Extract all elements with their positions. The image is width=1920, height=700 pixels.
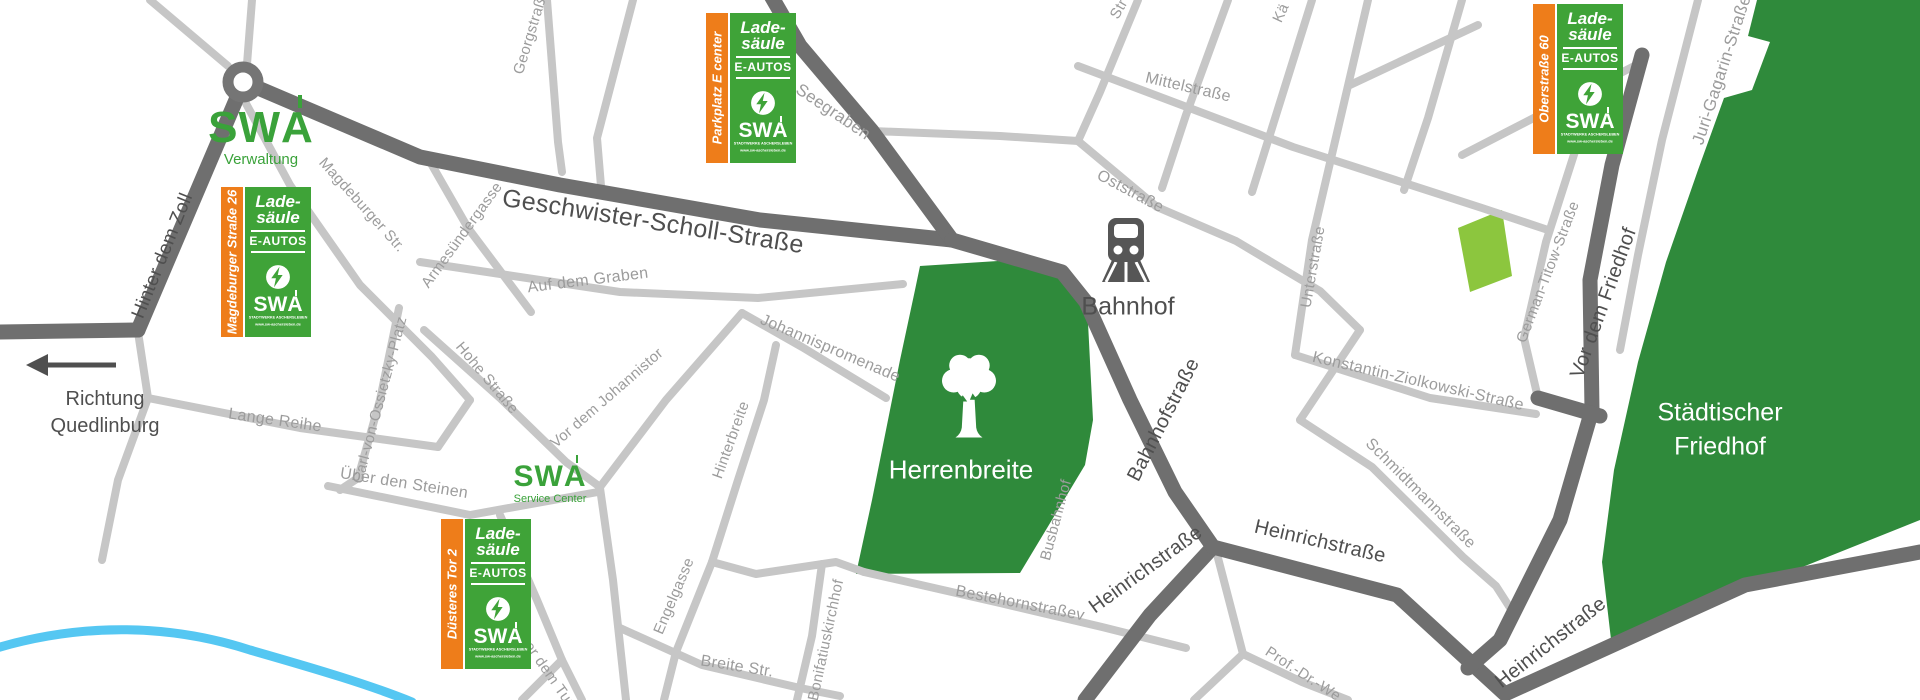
marker-vehicle-label: E-AUTOS	[469, 567, 526, 579]
swa-logo-text: SWA	[502, 462, 598, 492]
marker-brand-sub: STADTWERKE ASCHERSLEBEN	[249, 315, 308, 319]
swa-logo-text: SWA	[196, 106, 326, 150]
marker-brand-sub: STADTWERKE ASCHERSLEBEN	[469, 647, 528, 651]
marker-body: Lade-säule E-AUTOS SWA STADTWERKE ASCHER…	[245, 187, 311, 337]
charging-station-marker-magdeburger-strasse-26: Magdeburger Straße 26 Lade-säule E-AUTOS…	[221, 187, 311, 337]
roundabout	[228, 67, 258, 97]
marker-brand-url: www.sw-aschersleben.de	[1567, 139, 1613, 143]
divider	[471, 583, 525, 585]
marker-street-label: Parkplatz E center	[710, 32, 725, 145]
cemetery-area	[1602, 0, 1920, 648]
river	[0, 630, 412, 700]
marker-street-band: Düsteres Tor 2	[441, 519, 463, 669]
divider	[1563, 47, 1617, 49]
marker-street-label: Magdeburger Straße 26	[225, 190, 240, 335]
charging-bolt-icon	[265, 264, 291, 290]
city-map: Richtung Quedlinburg Hinter dem ZollMagd…	[0, 0, 1920, 700]
swa-verwaltung-logo: SWA Verwaltung	[196, 106, 326, 168]
charging-station-marker-parkplatz-e-center: Parkplatz E center Lade-säule E-AUTOS SW…	[706, 13, 796, 163]
divider	[736, 56, 790, 58]
marker-street-band: Magdeburger Straße 26	[221, 187, 243, 337]
direction-line1: Richtung	[20, 386, 190, 413]
marker-street-label: Düsteres Tor 2	[445, 549, 460, 640]
cemetery-label-line2: Friedhof	[1674, 433, 1766, 462]
left-arrow-icon	[24, 350, 124, 380]
charging-station-marker-oberstrasse-60: Oberstraße 60 Lade-säule E-AUTOS SWA STA…	[1533, 4, 1623, 154]
direction-line2: Quedlinburg	[20, 413, 190, 440]
marker-brand: SWA	[474, 627, 523, 647]
marker-vehicle-label: E-AUTOS	[734, 61, 791, 73]
divider	[251, 251, 305, 253]
green-areas	[856, 0, 1920, 648]
direction-hint: Richtung Quedlinburg	[20, 386, 190, 440]
park-label: Herrenbreite	[889, 455, 1034, 486]
marker-brand-url: www.sw-aschersleben.de	[475, 654, 521, 658]
marker-brand-url: www.sw-aschersleben.de	[255, 322, 301, 326]
marker-brand: SWA	[254, 295, 303, 315]
divider	[736, 77, 790, 79]
swa-tower-a-icon: A	[772, 121, 787, 141]
marker-body: Lade-säule E-AUTOS SWA STADTWERKE ASCHER…	[465, 519, 531, 669]
marker-vehicle-label: E-AUTOS	[1561, 52, 1618, 64]
swa-service-center-sub: Service Center	[502, 493, 598, 505]
swa-verwaltung-sub: Verwaltung	[196, 151, 326, 168]
divider	[471, 562, 525, 564]
small-green-lot	[1458, 210, 1512, 292]
marker-street-band: Oberstraße 60	[1533, 4, 1555, 154]
swa-service-center-logo: SWA Service Center	[502, 462, 598, 505]
marker-product: Lade-säule	[475, 526, 520, 558]
marker-brand-sub: STADTWERKE ASCHERSLEBEN	[734, 141, 793, 145]
marker-street-label: Oberstraße 60	[1537, 35, 1552, 122]
marker-product: Lade-säule	[1567, 11, 1612, 43]
charging-bolt-icon	[485, 596, 511, 622]
swa-tower-a-icon: A	[287, 295, 302, 315]
marker-brand: SWA	[1566, 112, 1615, 132]
swa-tower-a-icon: A	[507, 627, 522, 647]
swa-tower-a-icon: A	[281, 106, 314, 150]
cemetery-label-line1: Städtischer	[1657, 399, 1782, 428]
marker-brand: SWA	[739, 121, 788, 141]
marker-body: Lade-säule E-AUTOS SWA STADTWERKE ASCHER…	[1557, 4, 1623, 154]
marker-brand-sub: STADTWERKE ASCHERSLEBEN	[1561, 132, 1620, 136]
tree-icon	[924, 350, 1014, 444]
marker-body: Lade-säule E-AUTOS SWA STADTWERKE ASCHER…	[730, 13, 796, 163]
train-station-icon	[1098, 216, 1154, 284]
minor-roads	[102, 0, 1698, 700]
charging-station-marker-duesteres-tor-2: Düsteres Tor 2 Lade-säule E-AUTOS SWA ST…	[441, 519, 531, 669]
swa-tower-a-icon: A	[1599, 112, 1614, 132]
marker-street-band: Parkplatz E center	[706, 13, 728, 163]
divider	[1563, 68, 1617, 70]
swa-tower-a-icon: A	[564, 462, 587, 492]
divider	[251, 230, 305, 232]
station-label: Bahnhof	[1081, 293, 1174, 322]
marker-product: Lade-säule	[740, 20, 785, 52]
charging-bolt-icon	[1577, 81, 1603, 107]
marker-vehicle-label: E-AUTOS	[249, 235, 306, 247]
marker-product: Lade-säule	[255, 194, 300, 226]
charging-bolt-icon	[750, 90, 776, 116]
marker-brand-url: www.sw-aschersleben.de	[740, 148, 786, 152]
